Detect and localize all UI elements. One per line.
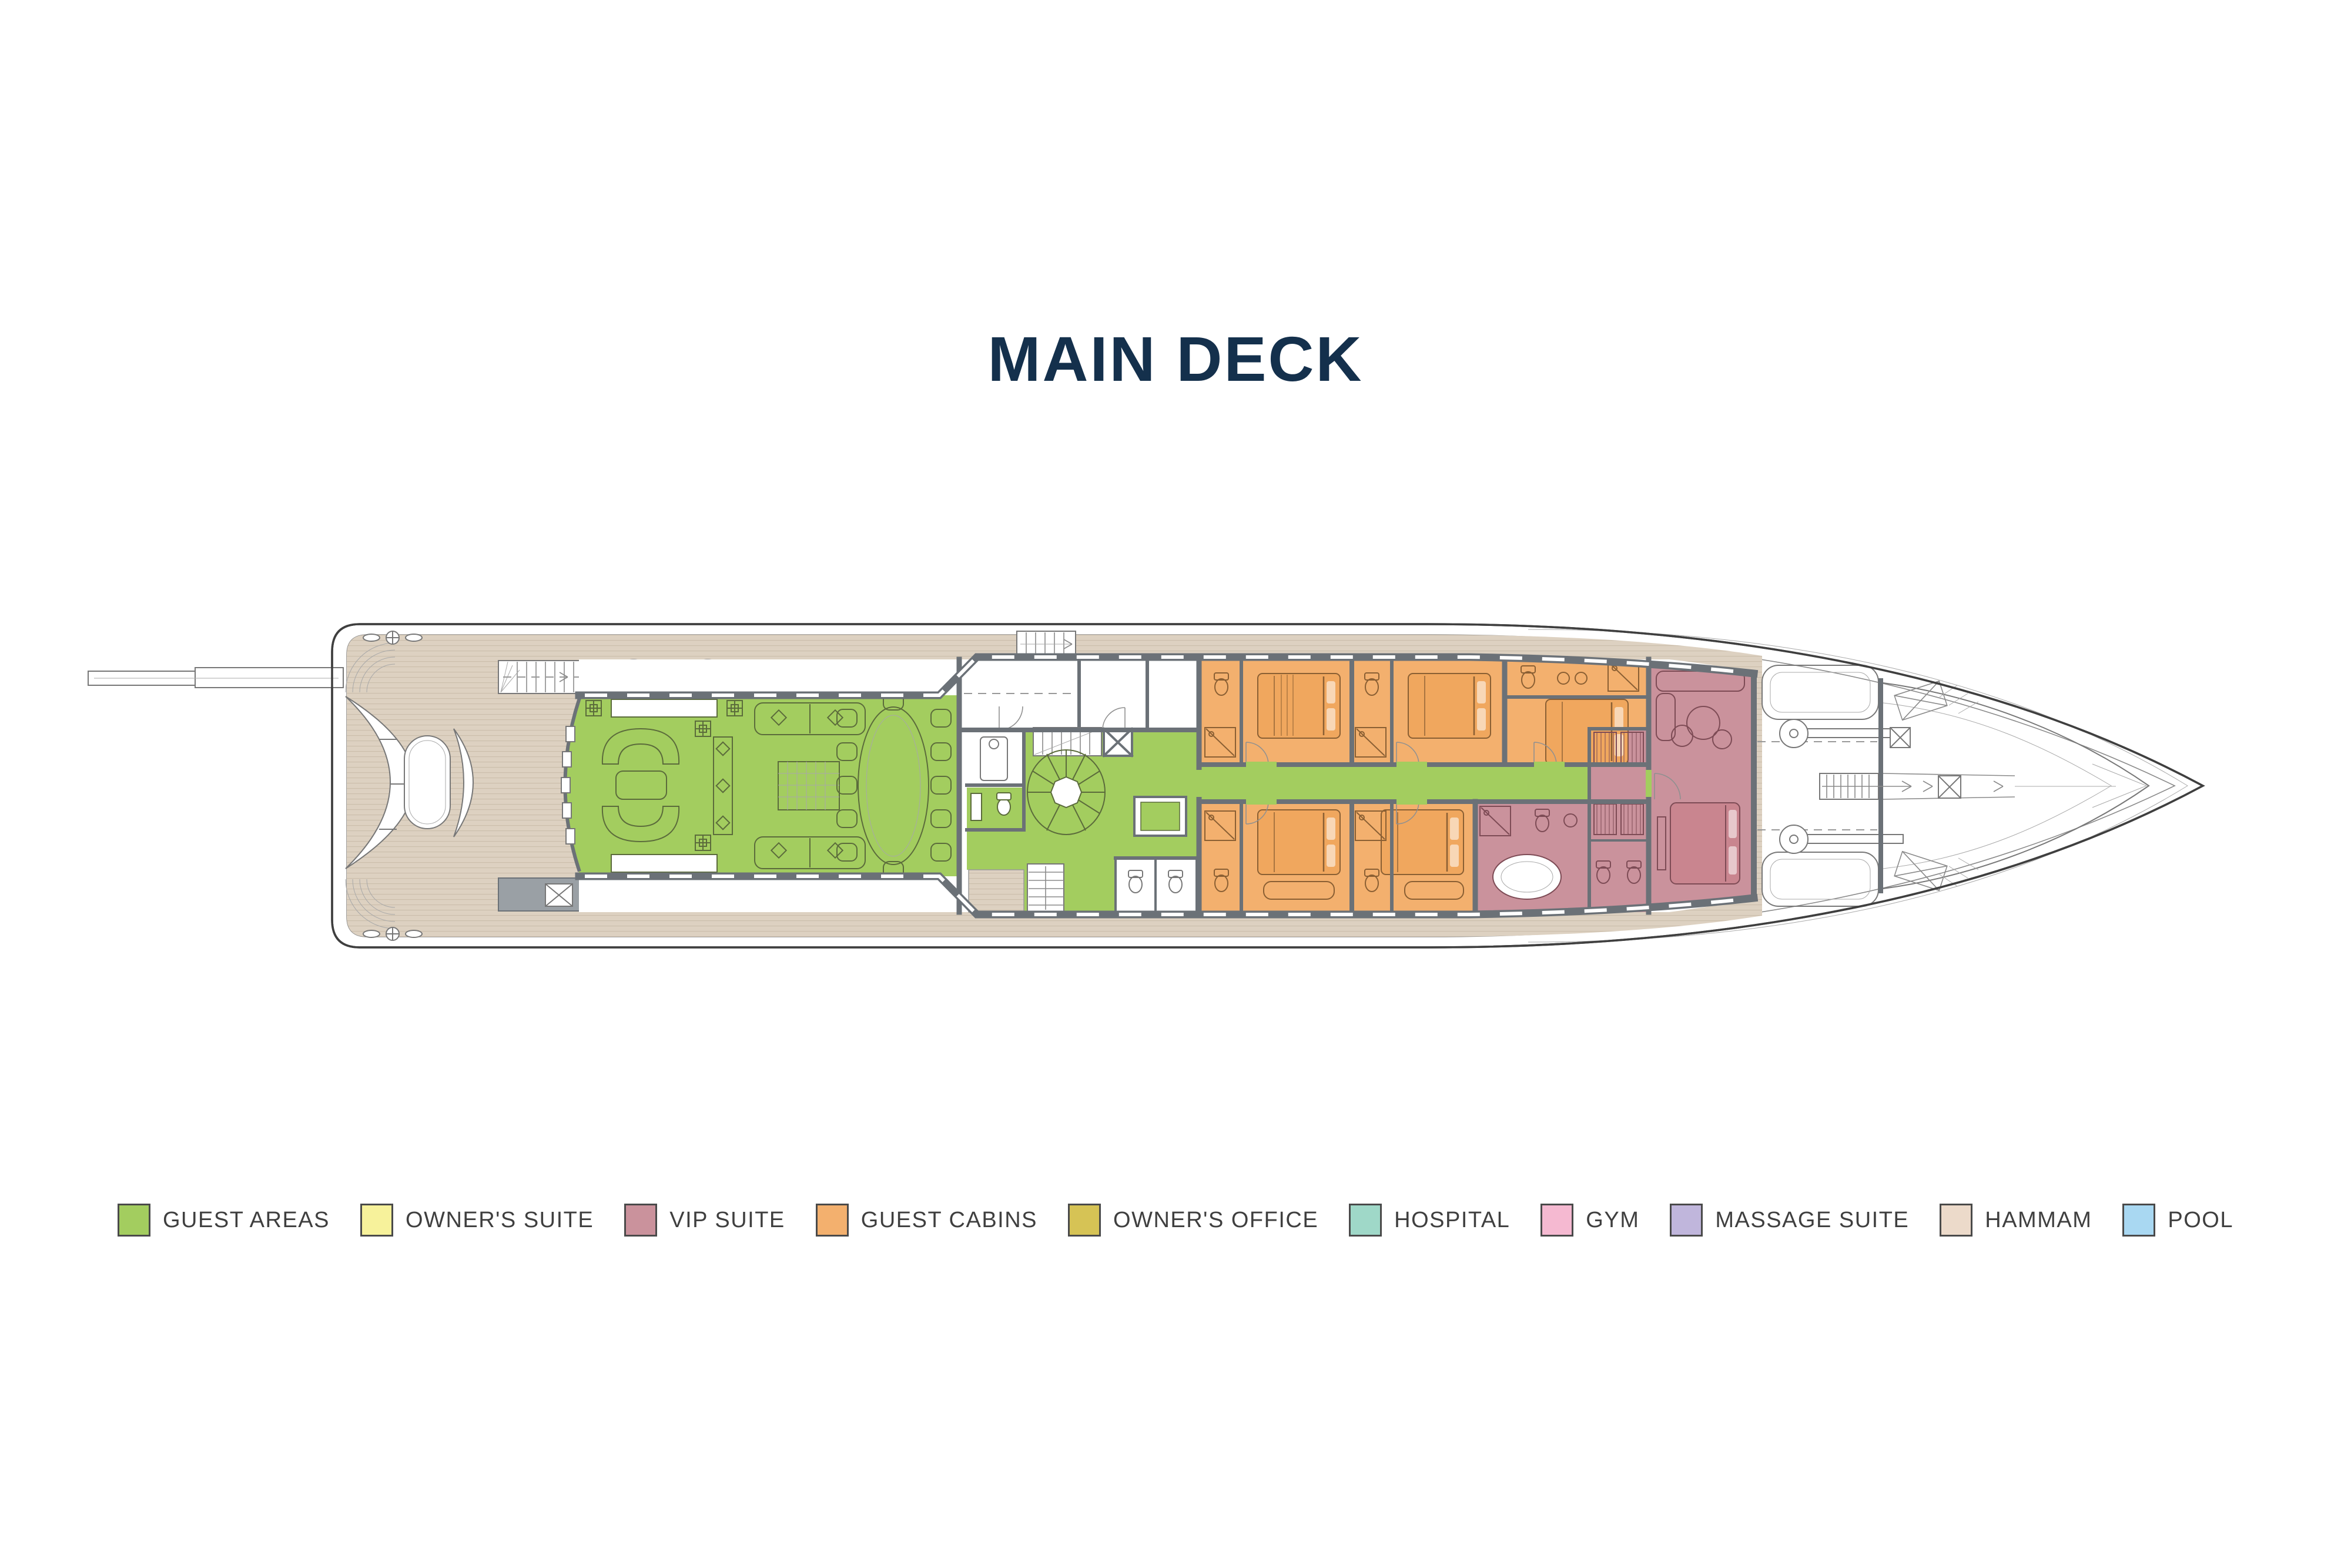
- toilet-icon: [997, 793, 1011, 815]
- legend-swatch-massage-suite: [1670, 1204, 1703, 1237]
- legend-swatch-guest-areas: [118, 1204, 150, 1237]
- legend-swatch-hospital: [1349, 1204, 1382, 1237]
- legend-swatch-pool: [2122, 1204, 2155, 1237]
- legend-item-owners-office: OWNER'S OFFICE: [1068, 1204, 1318, 1237]
- legend-label-owners-suite: OWNER'S SUITE: [406, 1208, 594, 1233]
- legend-label-guest-areas: GUEST AREAS: [163, 1208, 330, 1233]
- deck-plan-drawing: [0, 0, 2351, 1568]
- legend-item-guest-cabins: GUEST CABINS: [816, 1204, 1037, 1237]
- side-deck-garage-starboard: [498, 878, 583, 911]
- legend-swatch-owners-suite: [360, 1204, 393, 1237]
- side-deck-stair-port: [498, 661, 583, 693]
- lobby-wc-block: [1116, 858, 1197, 912]
- salon-sideboard-starboard: [611, 855, 717, 872]
- legend-swatch-gym: [1540, 1204, 1573, 1237]
- legend-swatch-owners-office: [1068, 1204, 1101, 1237]
- deck-plan-page: MAIN DECK: [0, 0, 2351, 1568]
- treatment-room: [969, 732, 1024, 785]
- legend-item-owners-suite: OWNER'S SUITE: [360, 1204, 594, 1237]
- elevator: [1104, 729, 1132, 756]
- salon-sideboard-port: [611, 699, 717, 717]
- guest-bed: [1258, 674, 1340, 738]
- legend-label-pool: POOL: [2168, 1208, 2233, 1233]
- legend-item-massage-suite: MASSAGE SUITE: [1670, 1204, 1909, 1237]
- legend-label-hospital: HOSPITAL: [1394, 1208, 1510, 1233]
- legend-swatch-guest-cabins: [816, 1204, 849, 1237]
- legend-label-guest-cabins: GUEST CABINS: [861, 1208, 1037, 1233]
- legend-item-hospital: HOSPITAL: [1349, 1204, 1510, 1237]
- legend-item-vip-suite: VIP SUITE: [624, 1204, 785, 1237]
- legend-label-massage-suite: MASSAGE SUITE: [1715, 1208, 1909, 1233]
- guest-bed: [1408, 674, 1491, 738]
- legend-item-gym: GYM: [1540, 1204, 1639, 1237]
- legend-label-owners-office: OWNER'S OFFICE: [1113, 1208, 1318, 1233]
- legend-label-vip-suite: VIP SUITE: [669, 1208, 785, 1233]
- vip-bed: [1657, 803, 1740, 884]
- legend: GUEST AREAS OWNER'S SUITE VIP SUITE GUES…: [0, 1204, 2351, 1237]
- legend-swatch-hammam: [1940, 1204, 1972, 1237]
- legend-item-hammam: HAMMAM: [1940, 1204, 2092, 1237]
- main-salon-floor: [565, 695, 960, 876]
- lobby-annex-floor: [967, 830, 1024, 870]
- glass-elevator: [1134, 797, 1186, 836]
- lobby-stairs-down: [1027, 864, 1064, 912]
- legend-label-gym: GYM: [1586, 1208, 1639, 1233]
- side-entry-vestibule: [969, 870, 1024, 912]
- legend-item-pool: POOL: [2122, 1204, 2233, 1237]
- legend-label-hammam: HAMMAM: [1985, 1208, 2092, 1233]
- corridor-floor: [1199, 767, 1649, 799]
- aft-deck-table: [404, 736, 450, 829]
- guest-bed: [1258, 810, 1340, 875]
- passerelle: [88, 668, 343, 688]
- legend-swatch-vip-suite: [624, 1204, 657, 1237]
- legend-item-guest-areas: GUEST AREAS: [118, 1204, 330, 1237]
- lobby-side-deck-stair: [1017, 631, 1076, 657]
